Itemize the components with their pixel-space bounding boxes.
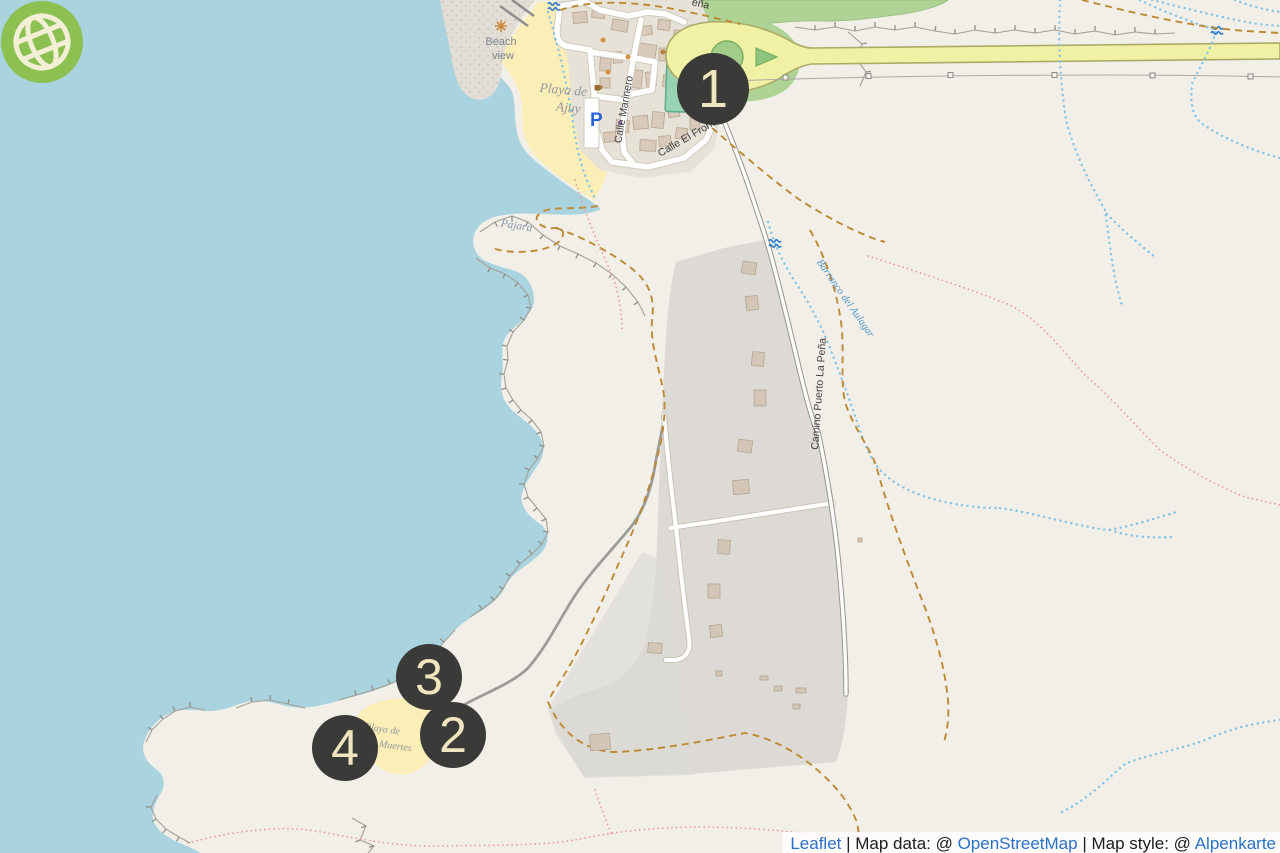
playa-ajuy-label2: Ajuy	[554, 99, 581, 116]
map-data-label: Map data: @	[855, 834, 957, 853]
marker-number: 4	[331, 723, 359, 773]
map-style-label: Map style: @	[1091, 834, 1194, 853]
parking-icon: P	[590, 110, 603, 131]
globe-logo-icon	[0, 0, 84, 84]
attribution-separator: |	[841, 834, 855, 853]
attribution-separator: |	[1078, 834, 1092, 853]
map-marker-3[interactable]: 3	[396, 644, 462, 710]
map-tiles: Beach view Playa de Ajuy Pájara Calle Ma…	[0, 0, 1280, 853]
marker-number: 2	[439, 710, 467, 760]
map-marker-2[interactable]: 2	[420, 702, 486, 768]
alpenkarte-link[interactable]: Alpenkarte	[1195, 834, 1276, 853]
marker-number: 3	[415, 652, 443, 702]
attribution-bar: Leaflet | Map data: @ OpenStreetMap | Ma…	[782, 832, 1280, 853]
leaflet-link[interactable]: Leaflet	[790, 834, 841, 853]
beach-view-label: Beach	[485, 36, 516, 48]
beach-view-label2: view	[492, 50, 514, 62]
marker-number: 1	[698, 62, 728, 116]
map-marker-1[interactable]: 1	[677, 53, 749, 125]
openstreetmap-link[interactable]: OpenStreetMap	[958, 834, 1078, 853]
map-marker-4[interactable]: 4	[312, 715, 378, 781]
map-canvas[interactable]: Beach view Playa de Ajuy Pájara Calle Ma…	[0, 0, 1280, 853]
